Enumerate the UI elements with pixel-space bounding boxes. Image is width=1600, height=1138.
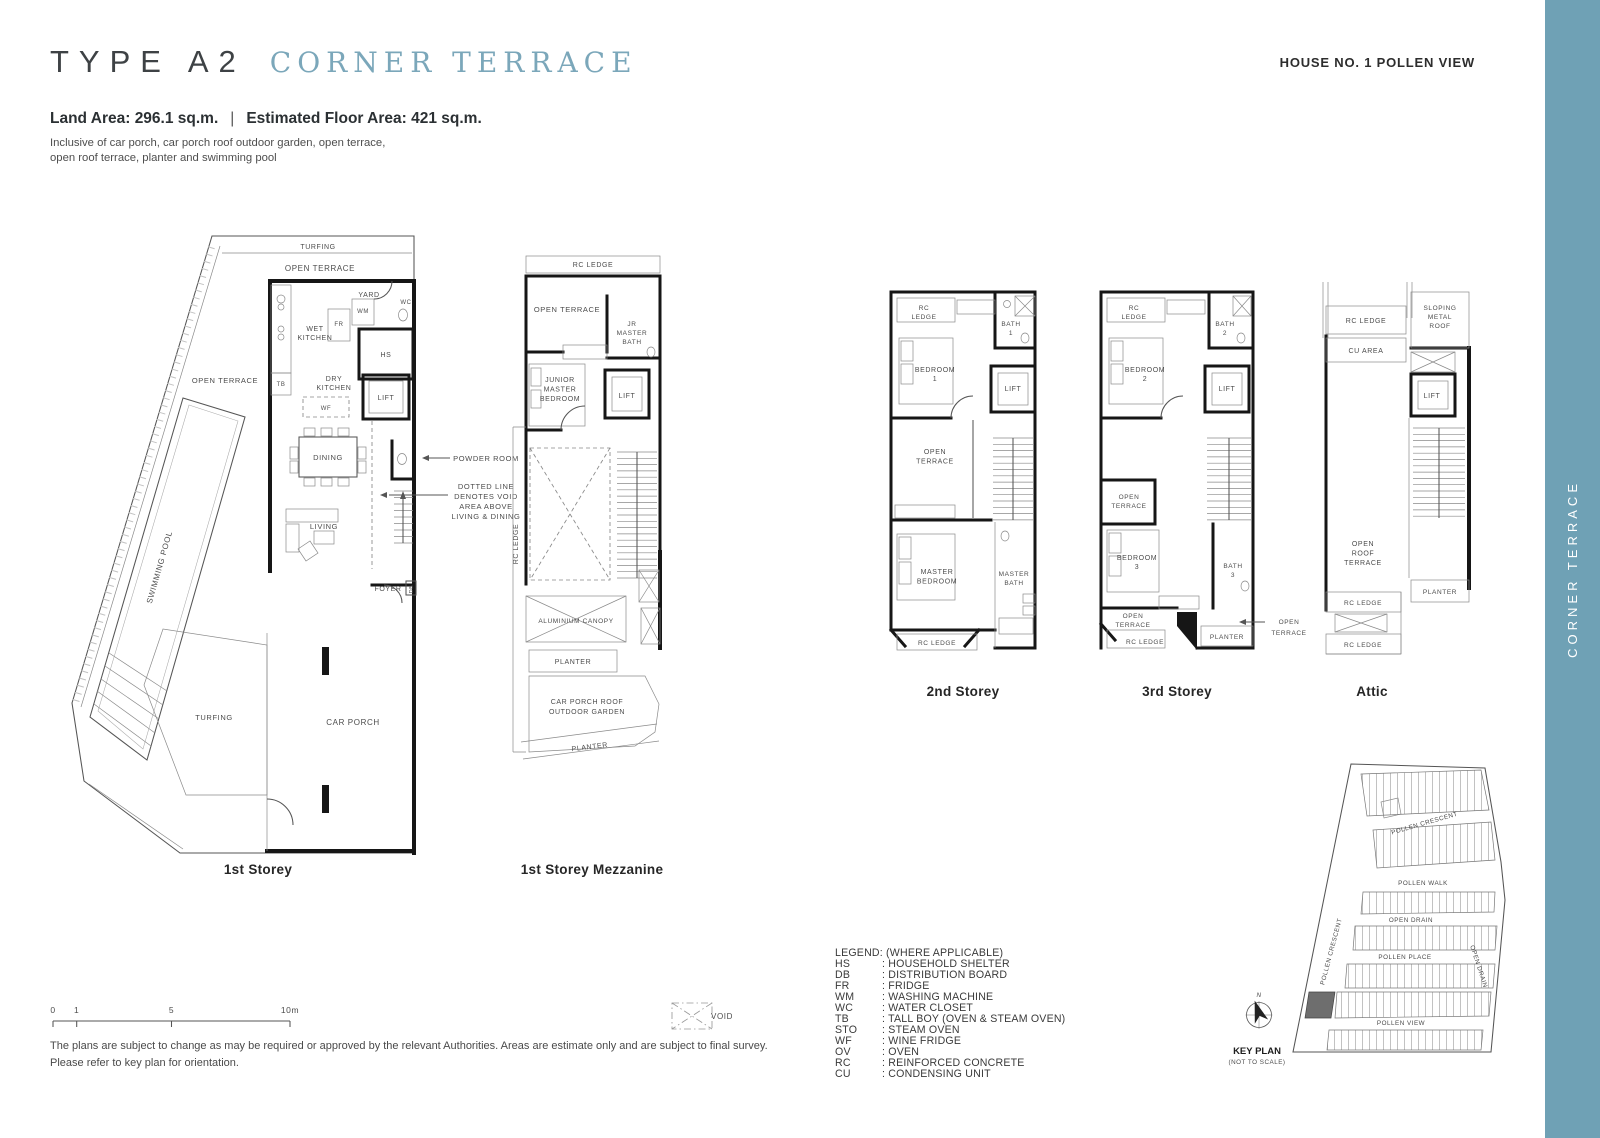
unit-type-label: TYPE A2 xyxy=(50,44,246,80)
label-car-porch: CAR PORCH xyxy=(326,718,379,727)
scale-tick-0: 0 xyxy=(50,1005,55,1015)
label-dining: DINING xyxy=(313,453,343,462)
area-summary: Land Area: 296.1 sq.m.|Estimated Floor A… xyxy=(50,110,482,128)
fixtures xyxy=(513,345,660,759)
label-wc: WC xyxy=(400,300,411,306)
label-wf: WF xyxy=(321,406,332,412)
label-rc-ledge-top: RC LEDGE xyxy=(573,262,614,269)
street-pollen-crescent-left: POLLEN CRESCENT xyxy=(1319,918,1344,986)
key-plan: POLLEN CRESCENT POLLEN WALK OPEN DRAIN P… xyxy=(1233,752,1525,1084)
label-master-bath: MASTERBATH xyxy=(999,571,1030,587)
scale-bar: 0 1 5 10m xyxy=(47,1000,317,1032)
label-open-terrace: OPEN TERRACE xyxy=(534,305,600,314)
label-open-terrace: OPENTERRACE xyxy=(916,449,954,466)
label-yard: YARD xyxy=(358,292,379,299)
label-rc-ledge-bottom: RC LEDGE xyxy=(1344,642,1382,649)
floor-area: Estimated Floor Area: 421 sq.m. xyxy=(246,110,481,127)
scale-tick-1: 1 xyxy=(74,1005,79,1015)
street-pollen-view: POLLEN VIEW xyxy=(1377,1020,1425,1027)
label-rc-ledge-bottom: RC LEDGE xyxy=(1126,639,1164,646)
inclusive-note: Inclusive of car porch, car porch roof o… xyxy=(50,136,385,166)
unit-type-name: CORNER TERRACE xyxy=(270,46,638,79)
label-dry-kitchen: DRYKITCHEN xyxy=(317,376,352,392)
label-lift: LIFT xyxy=(1424,393,1441,400)
corner-terrace-banner: CORNER TERRACE xyxy=(1545,0,1600,1138)
first-storey-plan: TURFING OPEN TERRACE YARD WC WM FR WETKI… xyxy=(62,233,492,858)
key-plan-note: (NOT TO SCALE) xyxy=(1228,1059,1285,1066)
label-planter: PLANTER xyxy=(1423,589,1457,596)
void-label: VOID xyxy=(711,1012,733,1021)
label-open-terrace-callout: OPENTERRACE xyxy=(1271,619,1306,637)
fixtures xyxy=(267,281,416,825)
label-turfing-bottom: TURFING xyxy=(195,713,233,722)
label-bedroom1: BEDROOM1 xyxy=(915,367,955,383)
highlighted-lot xyxy=(1305,992,1335,1018)
street-pollen-place: POLLEN PLACE xyxy=(1378,954,1431,961)
caption-attic: Attic xyxy=(1356,684,1388,699)
area-separator: | xyxy=(230,110,234,127)
label-rc-ledge-bottom: RC LEDGE xyxy=(918,640,956,647)
attic-plan: RC LEDGE SLOPINGMETALROOF CU AREA LIFT O… xyxy=(1313,278,1475,656)
label-lift: LIFT xyxy=(1005,386,1022,393)
label-open-terrace-mid: OPENTERRACE xyxy=(1111,494,1146,510)
pool-and-landscape xyxy=(90,398,267,851)
scale-tick-10: 10m xyxy=(281,1005,299,1015)
north-label: N xyxy=(1256,992,1261,999)
label-swimming-pool: SWIMMING POOL xyxy=(145,530,174,605)
caption-third-storey: 3rd Storey xyxy=(1142,684,1212,699)
inclusive-note-line1: Inclusive of car porch, car porch roof o… xyxy=(50,136,385,151)
label-rc-ledge-top: RCLEDGE xyxy=(911,305,936,321)
label-living: LIVING xyxy=(310,522,338,531)
disclaimer-line2: Please refer to key plan for orientation… xyxy=(50,1055,1230,1072)
legend-item: DBDISTRIBUTION BOARD xyxy=(835,970,1065,981)
lot-rows xyxy=(1327,770,1497,1050)
caption-mezzanine: 1st Storey Mezzanine xyxy=(521,862,664,877)
label-car-porch-roof: CAR PORCH ROOFOUTDOOR GARDEN xyxy=(549,699,625,716)
room-labels: TURFING OPEN TERRACE YARD WC WM FR WETKI… xyxy=(145,244,521,727)
label-planter-bottom: PLANTER xyxy=(571,742,608,753)
north-arrow-icon: N xyxy=(1246,992,1273,1029)
label-lift: LIFT xyxy=(619,393,636,400)
label-bath1: BATH1 xyxy=(1001,321,1020,337)
land-area: Land Area: 296.1 sq.m. xyxy=(50,110,218,127)
banner-label: CORNER TERRACE xyxy=(1565,480,1580,658)
label-open-terrace-left: OPEN TERRACE xyxy=(192,376,258,385)
second-storey-plan: RCLEDGE BATH1 BEDROOM1 LIFT OPENTERRACE … xyxy=(883,278,1043,656)
disclaimer-line1: The plans are subject to change as may b… xyxy=(50,1038,1230,1055)
label-planter-mid: PLANTER xyxy=(555,659,592,666)
label-rc-ledge-mid: RC LEDGE xyxy=(1344,600,1382,607)
scale-tick-5: 5 xyxy=(169,1005,174,1015)
page-title: TYPE A2 CORNER TERRACE xyxy=(50,44,638,80)
void-symbol: VOID xyxy=(670,1000,755,1034)
label-rc-ledge-top: RC LEDGE xyxy=(1346,318,1387,325)
label-hs: HS xyxy=(381,352,392,359)
label-turfing-top: TURFING xyxy=(300,244,335,251)
label-bath2: BATH2 xyxy=(1215,321,1234,337)
street-pollen-walk: POLLEN WALK xyxy=(1398,880,1448,887)
label-aluminium-canopy: ALUMINIUM CANOPY xyxy=(538,618,613,625)
label-fr: FR xyxy=(334,322,343,328)
room-labels: RC LEDGE SLOPINGMETALROOF CU AREA LIFT O… xyxy=(1344,305,1457,649)
label-rc-ledge-left: RC LEDGE xyxy=(513,524,520,565)
label-tb: TB xyxy=(277,382,286,388)
label-master-bedroom: MASTERBEDROOM xyxy=(917,569,957,586)
floorplan-page: TYPE A2 CORNER TERRACE HOUSE NO. 1 POLLE… xyxy=(0,0,1600,1138)
label-junior-master-bedroom: JUNIORMASTERBEDROOM xyxy=(540,377,580,403)
label-open-roof-terrace: OPENROOFTERRACE xyxy=(1344,541,1382,567)
house-number: HOUSE NO. 1 POLLEN VIEW xyxy=(1280,55,1475,70)
label-planter: PLANTER xyxy=(1210,634,1244,641)
label-wet-kitchen: WETKITCHEN xyxy=(298,326,333,342)
walls xyxy=(1101,292,1253,648)
label-foyer: FOYER xyxy=(374,586,401,593)
label-open-terrace-top: OPEN TERRACE xyxy=(285,264,355,273)
mezzanine-plan: RC LEDGE OPEN TERRACE JRMASTERBATH JUNIO… xyxy=(505,252,668,764)
disclaimer: The plans are subject to change as may b… xyxy=(50,1038,1230,1071)
room-labels: RC LEDGE OPEN TERRACE JRMASTERBATH JUNIO… xyxy=(513,262,647,753)
third-storey-plan: RCLEDGE BATH2 BEDROOM2 LIFT OPENTERRACE … xyxy=(1093,278,1315,656)
label-lift: LIFT xyxy=(378,395,395,402)
label-jr-master-bath: JRMASTERBATH xyxy=(617,321,648,346)
label-rc-ledge-top: RCLEDGE xyxy=(1121,305,1146,321)
label-bedroom3: BEDROOM3 xyxy=(1117,555,1157,571)
label-bath3: BATH3 xyxy=(1223,563,1242,579)
inclusive-note-line2: open roof terrace, planter and swimming … xyxy=(50,151,385,166)
label-lift: LIFT xyxy=(1219,386,1236,393)
label-db: DB xyxy=(409,585,415,594)
label-open-terrace-low: OPENTERRACE xyxy=(1115,613,1150,629)
label-bedroom2: BEDROOM2 xyxy=(1125,367,1165,383)
key-plan-title: KEY PLAN xyxy=(1233,1046,1281,1057)
walls xyxy=(267,281,414,853)
caption-first-storey: 1st Storey xyxy=(224,862,292,877)
street-open-drain-mid: OPEN DRAIN xyxy=(1389,917,1433,924)
caption-second-storey: 2nd Storey xyxy=(927,684,1000,699)
label-cu-area: CU AREA xyxy=(1349,348,1384,355)
label-wm: WM xyxy=(357,309,369,315)
